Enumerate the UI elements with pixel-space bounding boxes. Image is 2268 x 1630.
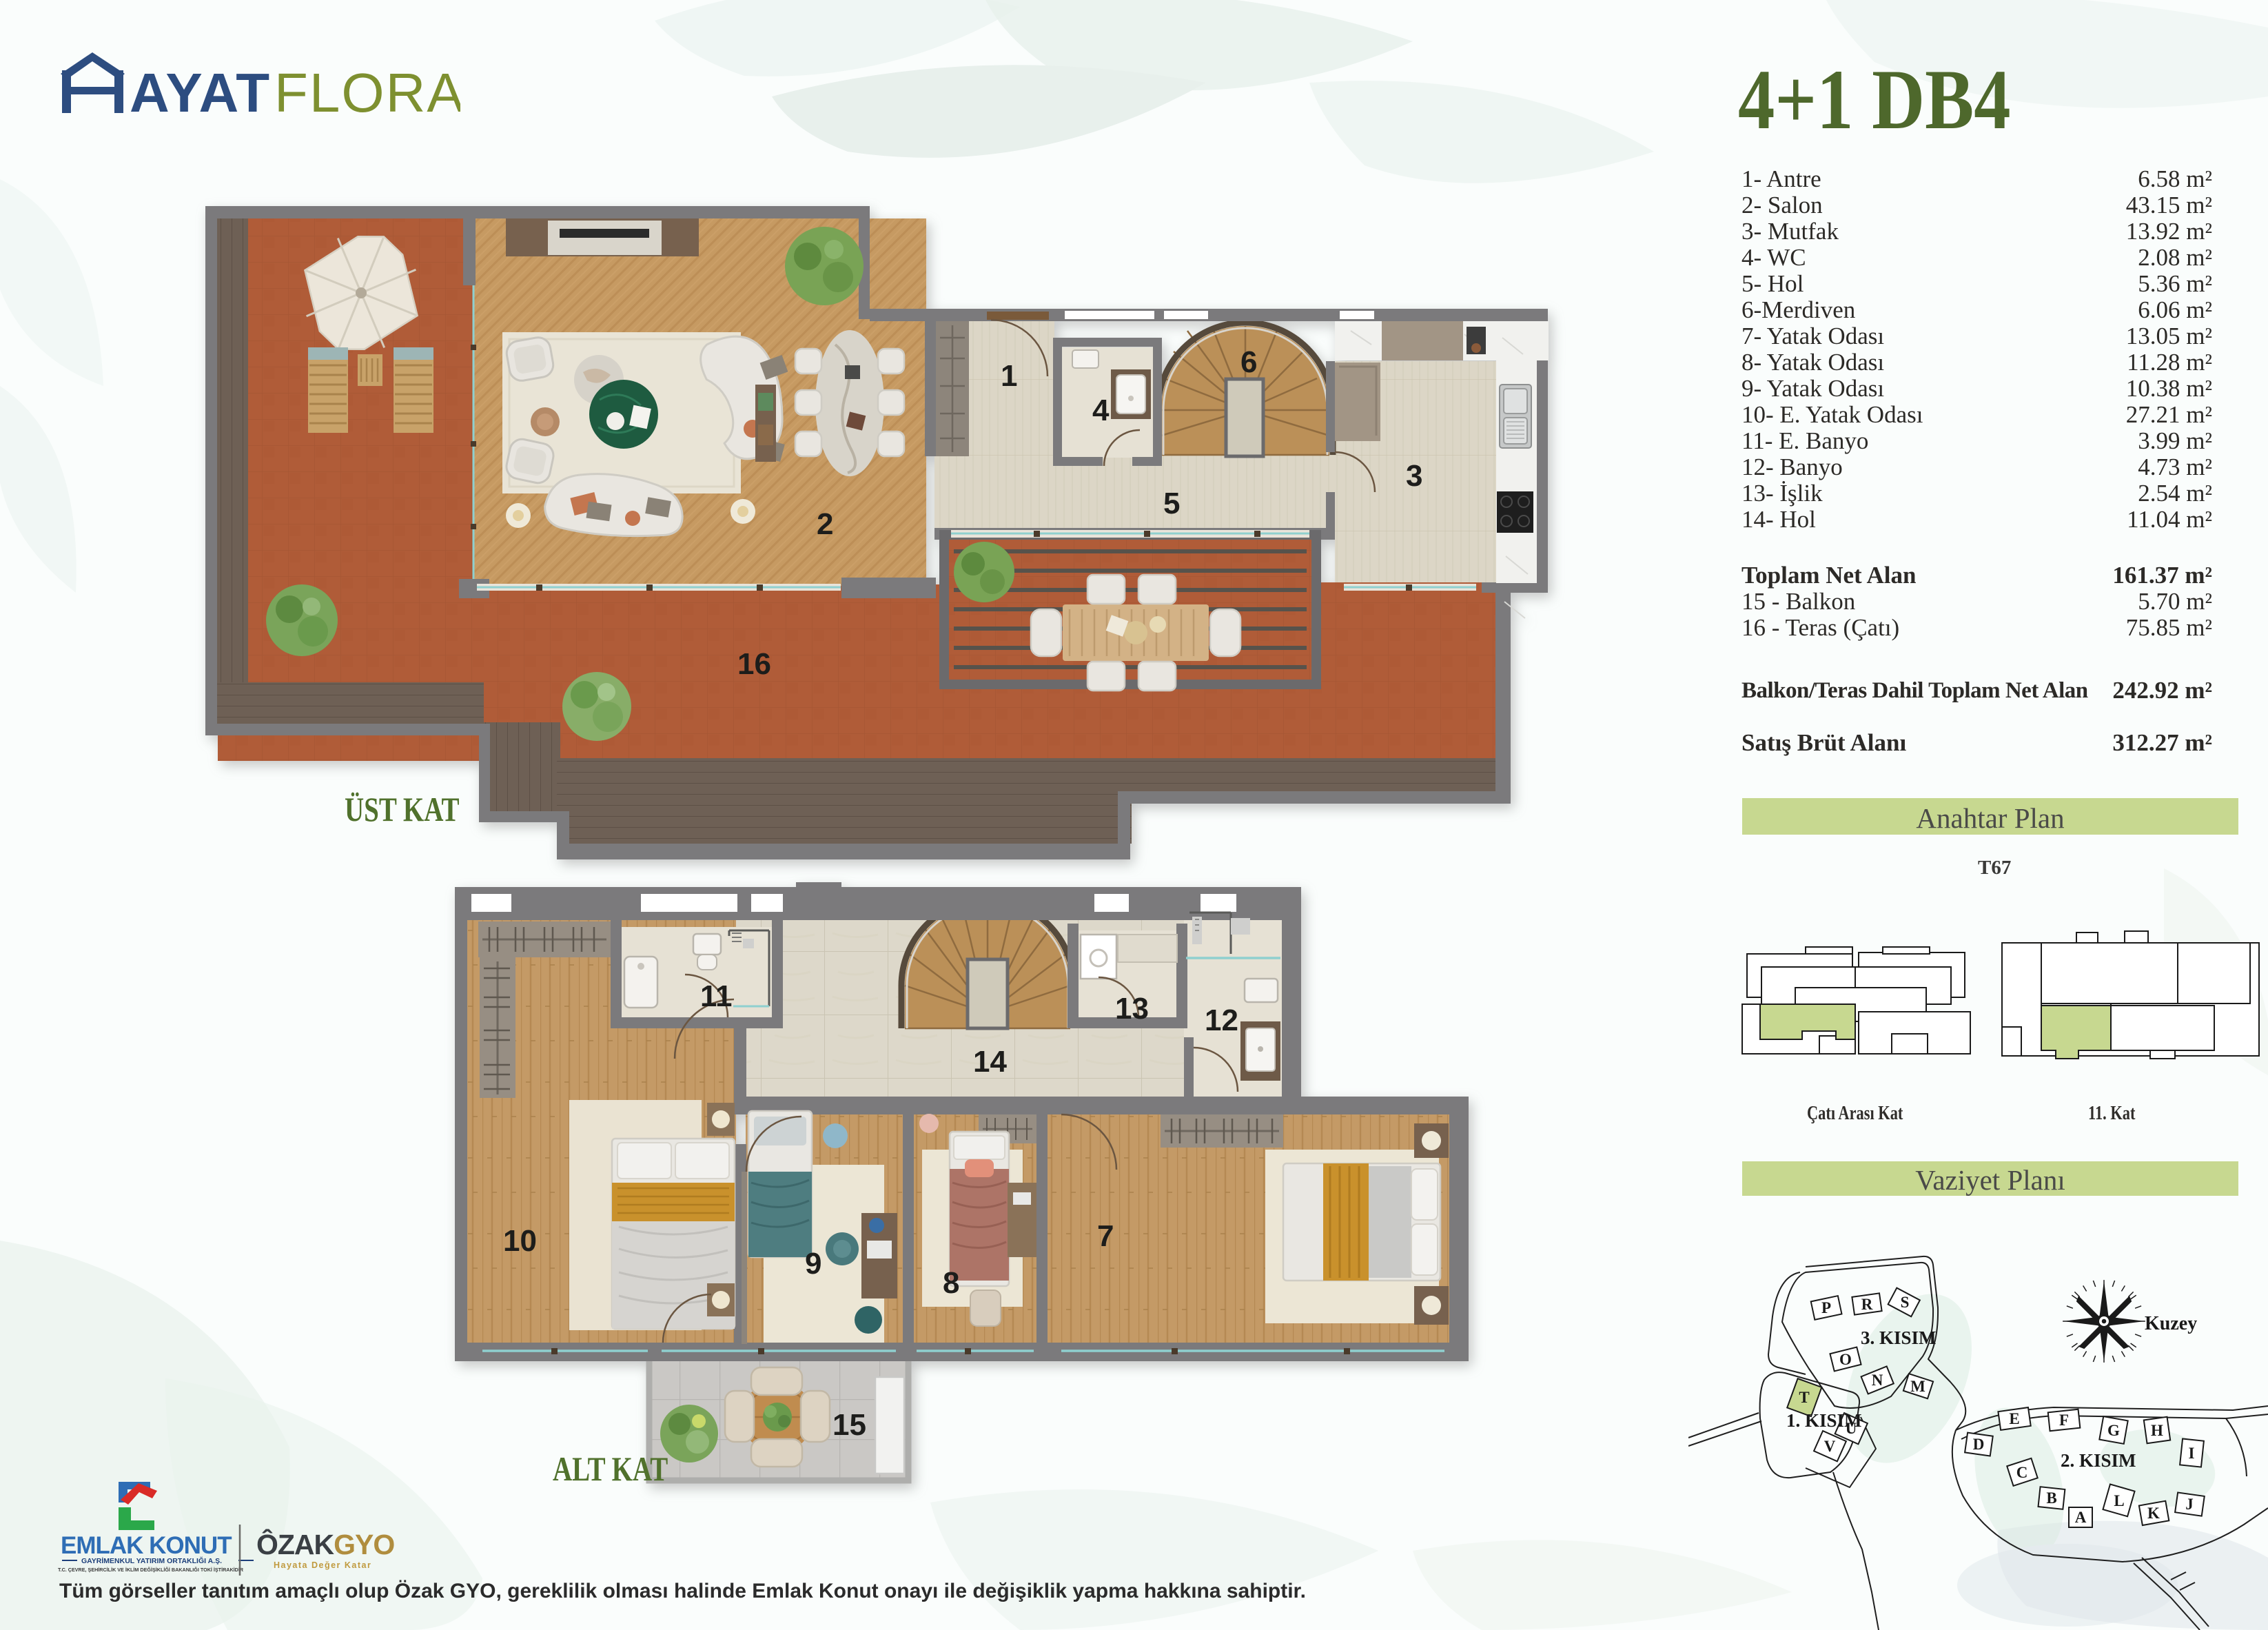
svg-text:7: 7 bbox=[1097, 1219, 1114, 1253]
svg-text:D: D bbox=[1973, 1436, 1985, 1453]
svg-text:C: C bbox=[2016, 1464, 2028, 1481]
svg-text:V: V bbox=[1824, 1438, 1836, 1455]
svg-text:A: A bbox=[2075, 1509, 2087, 1526]
svg-text:16: 16 bbox=[737, 647, 771, 681]
svg-text:9: 9 bbox=[805, 1247, 821, 1281]
svg-text:Kuzey: Kuzey bbox=[2145, 1313, 2197, 1334]
svg-text:2. KISIM: 2. KISIM bbox=[2061, 1450, 2136, 1471]
svg-text:4: 4 bbox=[1092, 394, 1110, 427]
svg-text:T: T bbox=[1799, 1389, 1809, 1406]
svg-text:S: S bbox=[1901, 1294, 1910, 1311]
svg-text:I: I bbox=[2189, 1445, 2195, 1462]
svg-text:1: 1 bbox=[1001, 359, 1017, 393]
svg-text:Hayata Değer Katar: Hayata Değer Katar bbox=[274, 1560, 371, 1570]
svg-text:8: 8 bbox=[943, 1266, 959, 1300]
svg-text:R: R bbox=[1861, 1296, 1873, 1313]
svg-text:15: 15 bbox=[832, 1408, 866, 1442]
svg-text:ÔZAKGYO: ÔZAKGYO bbox=[256, 1529, 394, 1560]
svg-text:H: H bbox=[2151, 1422, 2163, 1439]
svg-text:B: B bbox=[2046, 1489, 2056, 1507]
svg-text:AYAT: AYAT bbox=[130, 62, 271, 120]
svg-text:K: K bbox=[2147, 1505, 2160, 1522]
svg-text:14: 14 bbox=[973, 1045, 1007, 1079]
svg-text:T.C. ÇEVRE, ŞEHİRCİLİK VE İKLİ: T.C. ÇEVRE, ŞEHİRCİLİK VE İKLİM DEĞİŞİKL… bbox=[58, 1567, 244, 1573]
svg-text:L: L bbox=[2114, 1492, 2124, 1509]
svg-text:13: 13 bbox=[1115, 992, 1149, 1026]
svg-text:G: G bbox=[2107, 1422, 2120, 1439]
svg-text:11: 11 bbox=[700, 979, 733, 1013]
svg-text:5: 5 bbox=[1163, 487, 1180, 520]
svg-text:10: 10 bbox=[503, 1224, 537, 1258]
svg-text:O: O bbox=[1839, 1351, 1852, 1368]
svg-text:N: N bbox=[1872, 1372, 1883, 1389]
svg-text:P: P bbox=[1821, 1299, 1831, 1316]
svg-text:M: M bbox=[1910, 1378, 1925, 1395]
svg-text:1. KISIM: 1. KISIM bbox=[1786, 1410, 1862, 1431]
svg-text:J: J bbox=[2185, 1496, 2194, 1513]
svg-text:FLORA: FLORA bbox=[274, 62, 460, 120]
svg-text:GAYRİMENKUL YATIRIM ORTAKLIĞI: GAYRİMENKUL YATIRIM ORTAKLIĞI A.Ş. bbox=[81, 1556, 222, 1565]
svg-text:3. KISIM: 3. KISIM bbox=[1861, 1327, 1937, 1348]
svg-text:F: F bbox=[2059, 1412, 2069, 1429]
svg-text:12: 12 bbox=[1205, 1004, 1238, 1037]
svg-text:E: E bbox=[2009, 1410, 2019, 1427]
svg-text:2: 2 bbox=[817, 507, 833, 541]
svg-text:3: 3 bbox=[1406, 459, 1422, 493]
svg-text:6: 6 bbox=[1240, 345, 1257, 379]
svg-text:EMLAK KONUT: EMLAK KONUT bbox=[61, 1532, 232, 1559]
